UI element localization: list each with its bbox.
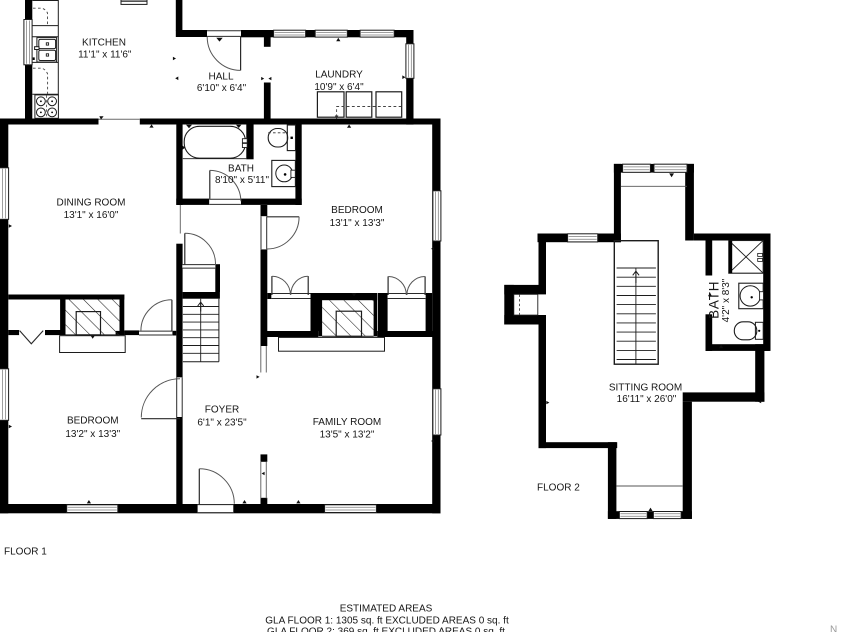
svg-text:10'9" x 6'4": 10'9" x 6'4" <box>314 82 364 93</box>
svg-text:FLOOR 1: FLOOR 1 <box>4 547 47 558</box>
svg-text:ESTIMATED AREAS: ESTIMATED AREAS <box>340 603 433 614</box>
svg-text:13'2" x 13'3": 13'2" x 13'3" <box>65 429 120 440</box>
svg-text:8'10" x 5'11": 8'10" x 5'11" <box>215 175 270 186</box>
svg-text:DINING ROOM: DINING ROOM <box>57 197 126 208</box>
svg-text:4'2" x 8'3": 4'2" x 8'3" <box>721 278 732 322</box>
svg-text:13'1" x 16'0": 13'1" x 16'0" <box>64 210 119 221</box>
svg-text:16'11" x 26'0": 16'11" x 26'0" <box>617 394 677 405</box>
svg-text:13'5" x 13'2": 13'5" x 13'2" <box>320 429 375 440</box>
svg-text:FLOOR 2: FLOOR 2 <box>537 482 580 493</box>
svg-text:BEDROOM: BEDROOM <box>331 205 383 216</box>
svg-text:6'10" x 6'4": 6'10" x 6'4" <box>197 83 247 94</box>
svg-text:BATH: BATH <box>707 281 722 319</box>
svg-text:LAUNDRY: LAUNDRY <box>315 70 363 81</box>
svg-text:11'1" x 11'6": 11'1" x 11'6" <box>78 49 132 60</box>
svg-text:N: N <box>830 625 837 632</box>
svg-text:13'1" x 13'3": 13'1" x 13'3" <box>330 218 385 229</box>
svg-text:HALL: HALL <box>208 71 233 82</box>
svg-text:KITCHEN: KITCHEN <box>82 38 126 49</box>
svg-text:BATH: BATH <box>228 164 254 175</box>
svg-text:GLA FLOOR 1: 1305 sq. ft EXCLU: GLA FLOOR 1: 1305 sq. ft EXCLUDED AREAS … <box>265 615 509 626</box>
svg-text:FOYER: FOYER <box>205 404 239 415</box>
svg-text:6'1" x 23'5": 6'1" x 23'5" <box>197 417 247 428</box>
svg-text:SITTING ROOM: SITTING ROOM <box>609 382 682 393</box>
svg-text:FAMILY ROOM: FAMILY ROOM <box>313 417 382 428</box>
svg-text:BEDROOM: BEDROOM <box>67 415 119 426</box>
svg-text:GLA FLOOR 2: 369 sq. ft EXCLUD: GLA FLOOR 2: 369 sq. ft EXCLUDED AREAS 0… <box>267 627 505 632</box>
